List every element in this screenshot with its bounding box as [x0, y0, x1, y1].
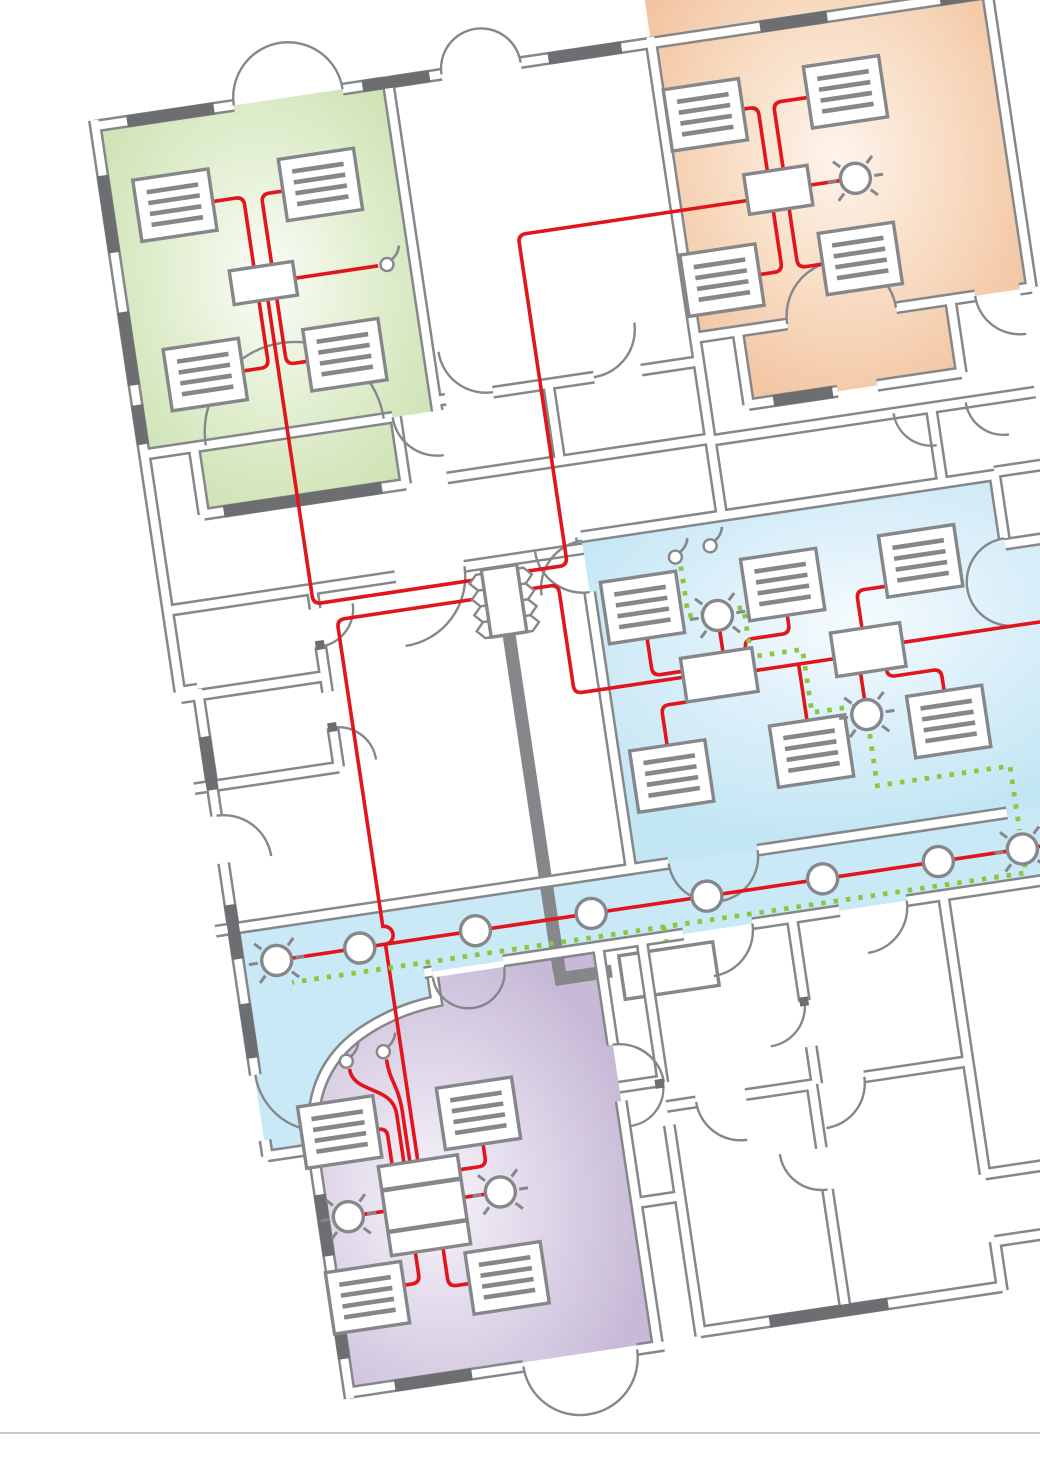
radiator: [878, 525, 962, 598]
radiator: [663, 79, 747, 152]
controller-orange: [744, 165, 813, 214]
floorplan-page: [0, 0, 1040, 1471]
radiator: [740, 548, 824, 621]
wall-fixture-box: [619, 942, 719, 1000]
radiator: [278, 148, 362, 221]
radiator: [680, 244, 764, 317]
radiator: [325, 1261, 409, 1334]
controller-green: [229, 261, 297, 304]
radiator: [907, 685, 991, 758]
controller-blue-left: [680, 648, 758, 702]
floorplan-diagram: [0, 0, 1040, 1471]
radiator: [465, 1242, 549, 1315]
controller-purple: [378, 1155, 470, 1256]
radiator: [769, 715, 853, 788]
radiator: [133, 169, 217, 242]
controller-blue-right: [830, 623, 906, 677]
radiator: [163, 338, 247, 411]
radiator: [803, 56, 887, 129]
radiator: [303, 318, 387, 391]
manifold: [468, 563, 540, 640]
radiator: [630, 740, 714, 813]
radiator: [818, 222, 902, 295]
rotated-plan: [85, 0, 1040, 1458]
radiator: [436, 1077, 520, 1150]
radiator: [298, 1096, 382, 1169]
radiator: [600, 571, 684, 644]
